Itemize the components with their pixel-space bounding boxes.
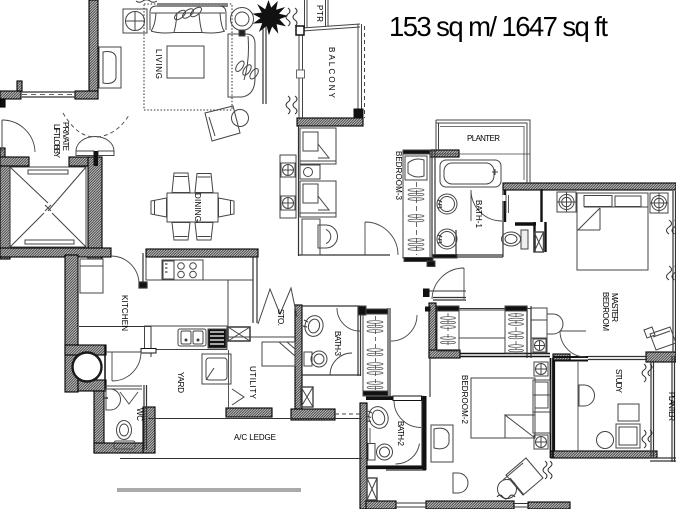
svg-text:PRIVATE: PRIVATE xyxy=(61,122,70,151)
svg-text:STUDY: STUDY xyxy=(614,369,623,394)
svg-text:BATH-1: BATH-1 xyxy=(474,200,483,229)
svg-text:153 sq m/ 1647 sq ft: 153 sq m/ 1647 sq ft xyxy=(389,11,608,42)
svg-text:MASTER: MASTER xyxy=(610,293,619,322)
svg-text:BEDROOM-2: BEDROOM-2 xyxy=(460,375,469,425)
svg-text:DINING: DINING xyxy=(193,193,202,222)
svg-text:UTILITY: UTILITY xyxy=(248,366,257,400)
svg-text:A/C LEDGE: A/C LEDGE xyxy=(234,433,276,442)
svg-text:BATH-2: BATH-2 xyxy=(396,421,405,447)
svg-text:WC: WC xyxy=(135,408,144,421)
svg-text:BATH-3: BATH-3 xyxy=(333,331,342,357)
svg-text:BEDROOM: BEDROOM xyxy=(601,292,610,331)
svg-text:KITCHEN: KITCHEN xyxy=(120,295,129,331)
svg-text:PLANTER: PLANTER xyxy=(467,134,500,143)
svg-text:PTR: PTR xyxy=(315,5,324,22)
svg-text:YARD: YARD xyxy=(176,372,185,393)
svg-text:STO.: STO. xyxy=(276,309,285,326)
svg-text:BEDROOM-3: BEDROOM-3 xyxy=(394,151,403,201)
svg-text:LIVING: LIVING xyxy=(154,49,163,79)
svg-text:PLANTER: PLANTER xyxy=(667,392,676,421)
svg-text:LIFT LOBBY: LIFT LOBBY xyxy=(52,124,61,159)
